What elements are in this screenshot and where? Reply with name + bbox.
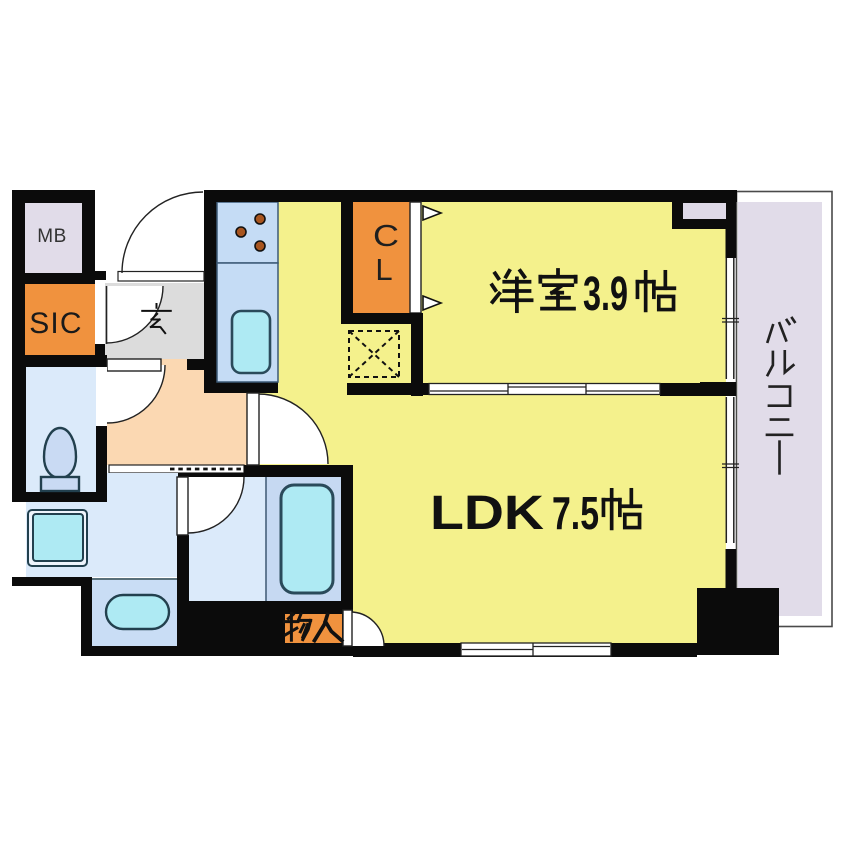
svg-text:LDK: LDK: [430, 487, 544, 540]
svg-text:MB: MB: [37, 226, 67, 247]
svg-text:C: C: [373, 218, 399, 253]
svg-text:7.5: 7.5: [552, 487, 599, 539]
svg-text:L: L: [375, 252, 392, 287]
svg-text:SIC: SIC: [29, 307, 83, 340]
svg-text:3.9: 3.9: [583, 268, 628, 321]
